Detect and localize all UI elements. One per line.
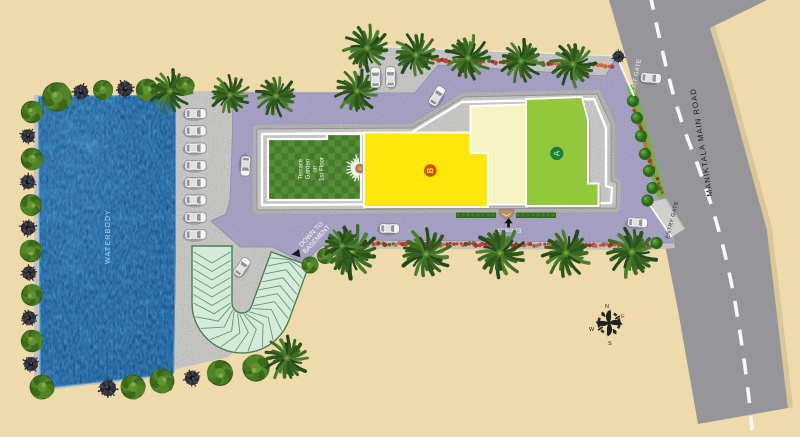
svg-text:W: W [589, 327, 595, 333]
svg-text:S: S [608, 341, 612, 347]
svg-text:1st Floor: 1st Floor [319, 157, 326, 181]
svg-text:Entrance: Entrance [495, 227, 521, 234]
svg-text:N: N [605, 304, 609, 310]
svg-text:on: on [312, 165, 319, 172]
svg-text:Terrace: Terrace [298, 158, 305, 179]
svg-text:B: B [426, 167, 435, 173]
svg-text:WATERBODY: WATERBODY [105, 209, 112, 264]
svg-text:Garden: Garden [305, 158, 312, 179]
svg-text:A: A [552, 150, 562, 156]
svg-text:E: E [621, 314, 625, 320]
